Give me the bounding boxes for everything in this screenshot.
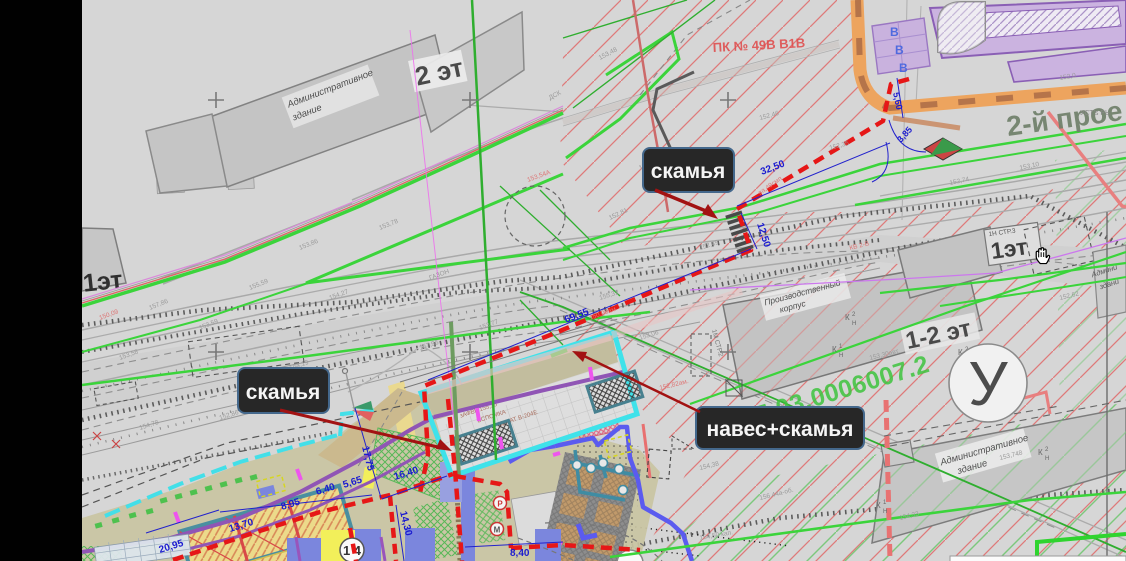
svg-text:скамья: скамья (651, 160, 726, 183)
svg-text:Н: Н (852, 321, 856, 327)
svg-text:К: К (1038, 448, 1043, 457)
svg-text:К: К (845, 313, 850, 322)
svg-text:В: В (890, 25, 899, 39)
svg-text:В: В (899, 61, 908, 75)
svg-text:УСТ's РЬ: УСТ's РЬ (1080, 110, 1110, 117)
svg-text:Р: Р (497, 500, 503, 509)
svg-text:М: М (494, 526, 501, 535)
svg-text:Н: Н (839, 353, 843, 359)
svg-text:навес+скамья: навес+скамья (707, 418, 854, 441)
svg-text:К: К (876, 501, 881, 510)
svg-text:У: У (968, 350, 1008, 419)
svg-text:скамья: скамья (246, 381, 321, 404)
svg-text:8,40: 8,40 (510, 548, 530, 559)
svg-text:Н: Н (1045, 456, 1049, 462)
svg-text:К: К (832, 345, 837, 354)
svg-text:1эт: 1эт (989, 233, 1029, 264)
svg-text:Н: Н (883, 509, 887, 515)
svg-text:В: В (895, 43, 904, 57)
